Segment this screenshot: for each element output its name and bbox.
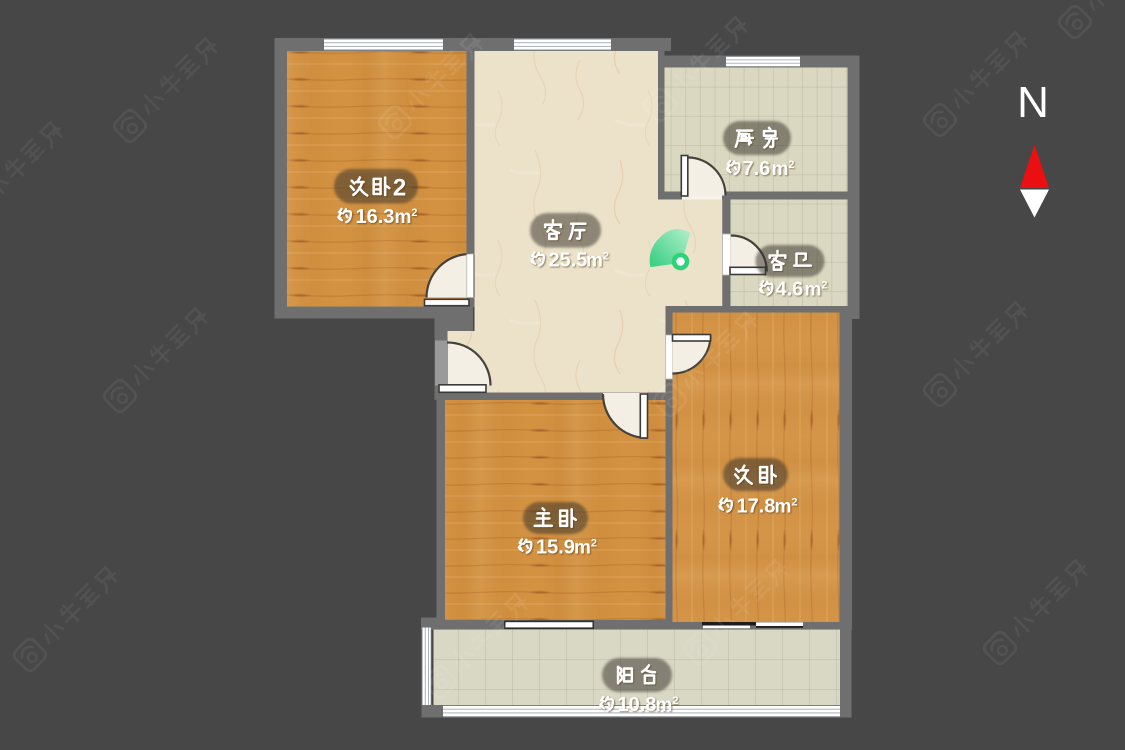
svg-text:2: 2 [393, 175, 406, 202]
svg-text:16.3: 16.3 [356, 206, 395, 228]
svg-text:10.8: 10.8 [618, 694, 657, 716]
svg-text:7.6: 7.6 [743, 158, 771, 180]
svg-text:4.6: 4.6 [776, 279, 804, 301]
svg-text:N: N [1017, 78, 1049, 127]
svg-text:17.8: 17.8 [737, 496, 776, 518]
svg-text:25.5: 25.5 [549, 250, 588, 272]
svg-text:15.9: 15.9 [536, 537, 575, 559]
